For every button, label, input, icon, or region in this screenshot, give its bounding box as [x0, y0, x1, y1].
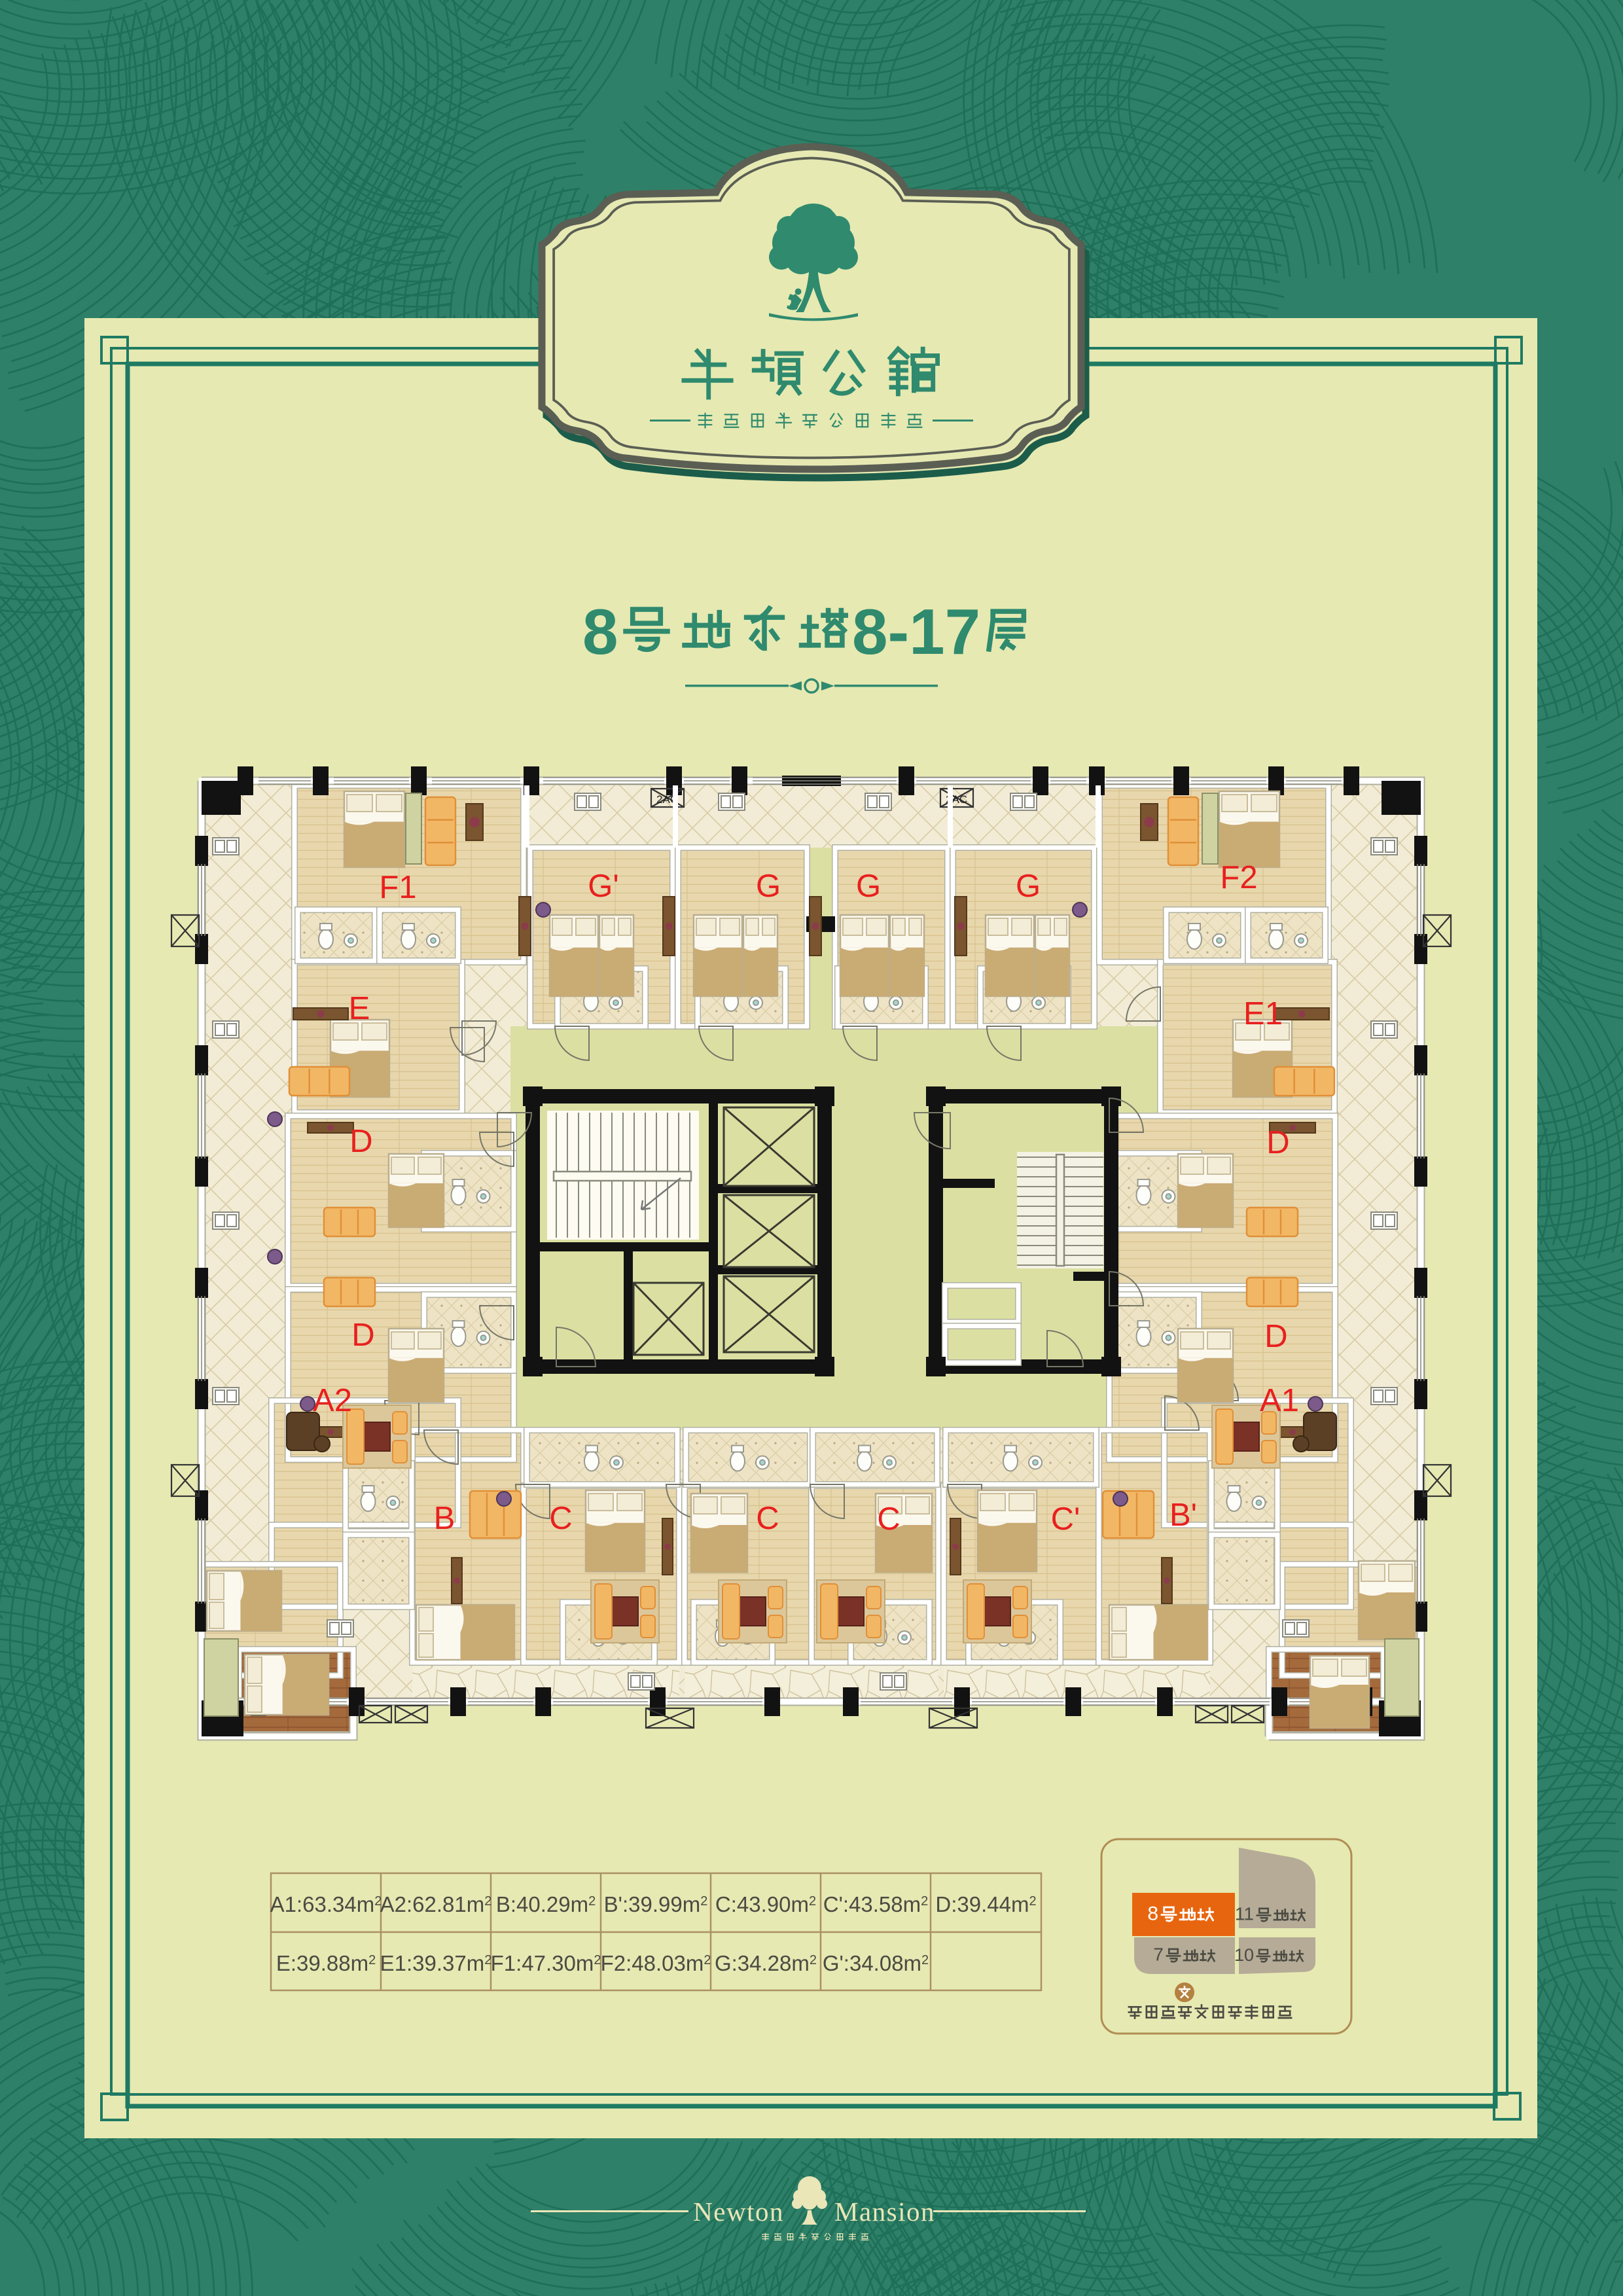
svg-text:C: C [549, 1501, 572, 1536]
svg-text:D: D [351, 1318, 374, 1353]
svg-text:8: 8 [1147, 1903, 1158, 1924]
svg-text:10: 10 [1234, 1945, 1254, 1965]
svg-text:C': C' [1051, 1501, 1080, 1537]
svg-text:A1: A1 [1260, 1383, 1299, 1418]
svg-text:E: E [349, 991, 370, 1026]
svg-text:G: G [856, 869, 881, 904]
svg-text:G: G [756, 869, 781, 904]
svg-text:F1: F1 [379, 870, 416, 905]
svg-text:D: D [1266, 1125, 1289, 1160]
svg-text:G: G [1016, 869, 1041, 904]
svg-text:11: 11 [1235, 1904, 1254, 1924]
svg-text:A2: A2 [313, 1383, 352, 1418]
svg-text:B': B' [1169, 1498, 1197, 1533]
svg-text:E1: E1 [1243, 996, 1283, 1031]
svg-text:B: B [434, 1501, 455, 1536]
svg-text:7: 7 [1153, 1945, 1164, 1965]
svg-text:C: C [877, 1501, 900, 1537]
svg-text:G': G' [588, 869, 618, 904]
svg-text:D: D [1264, 1319, 1287, 1354]
svg-text:D: D [349, 1124, 372, 1159]
svg-text:C: C [756, 1501, 779, 1536]
svg-text:Newton: Newton [693, 2197, 784, 2227]
svg-text:F2: F2 [1220, 860, 1257, 895]
svg-text:Mansion: Mansion [834, 2197, 935, 2227]
